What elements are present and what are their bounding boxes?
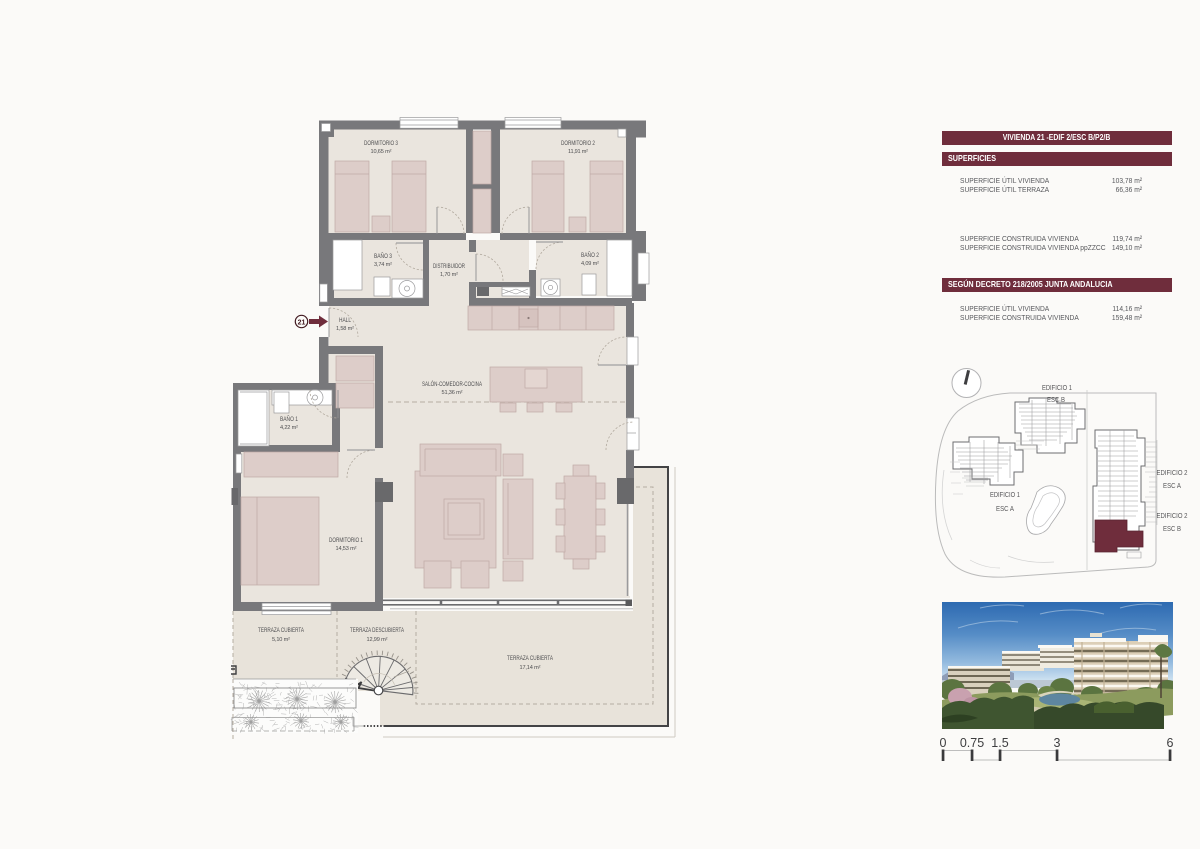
svg-text:4,22 m²: 4,22 m² <box>280 425 298 431</box>
svg-text:TERRAZA DESCUBIERTA: TERRAZA DESCUBIERTA <box>350 628 404 634</box>
svg-text:4,09 m²: 4,09 m² <box>581 261 599 267</box>
svg-text:17,14 m²: 17,14 m² <box>520 665 541 671</box>
svg-text:11,91 m²: 11,91 m² <box>568 149 588 155</box>
svg-text:HALL: HALL <box>339 318 352 324</box>
svg-text:DORMITORIO 2: DORMITORIO 2 <box>561 141 596 147</box>
svg-text:51,36 m²: 51,36 m² <box>442 390 463 396</box>
svg-text:0.75: 0.75 <box>960 736 984 750</box>
svg-text:6: 6 <box>1167 736 1174 750</box>
svg-text:BAÑO 2: BAÑO 2 <box>581 252 600 259</box>
svg-text:3,74 m²: 3,74 m² <box>374 262 392 268</box>
svg-text:DORMITORIO 3: DORMITORIO 3 <box>364 141 399 147</box>
svg-text:DORMITORIO 1: DORMITORIO 1 <box>329 538 364 544</box>
svg-text:EDIFICIO 2: EDIFICIO 2 <box>1157 468 1188 477</box>
svg-text:EDIFICIO 1: EDIFICIO 1 <box>1042 383 1072 392</box>
svg-text:10,65 m²: 10,65 m² <box>371 149 392 155</box>
svg-text:3: 3 <box>1054 736 1061 750</box>
svg-text:BAÑO 3: BAÑO 3 <box>374 253 393 260</box>
svg-text:ESC A: ESC A <box>996 504 1014 513</box>
svg-text:DISTRIBUIDOR: DISTRIBUIDOR <box>433 264 465 270</box>
svg-text:1,70 m²: 1,70 m² <box>440 272 458 278</box>
svg-text:EDIFICIO 2: EDIFICIO 2 <box>1157 511 1188 520</box>
svg-text:5,10 m²: 5,10 m² <box>272 637 290 643</box>
svg-text:ESC B: ESC B <box>1163 524 1181 533</box>
svg-text:12,99 m²: 12,99 m² <box>367 637 388 643</box>
svg-text:TERRAZA CUBIERTA: TERRAZA CUBIERTA <box>507 656 553 662</box>
svg-text:ESC B: ESC B <box>1047 395 1065 404</box>
svg-text:21: 21 <box>298 319 306 326</box>
svg-text:14,53 m²: 14,53 m² <box>336 546 357 552</box>
svg-text:SALÓN-COMEDOR-COCINA: SALÓN-COMEDOR-COCINA <box>422 381 482 388</box>
svg-text:0: 0 <box>940 736 947 750</box>
svg-text:TERRAZA CUBIERTA: TERRAZA CUBIERTA <box>258 628 304 634</box>
svg-text:BAÑO 1: BAÑO 1 <box>280 416 299 423</box>
svg-text:EDIFICIO 1: EDIFICIO 1 <box>990 490 1020 499</box>
svg-text:1.5: 1.5 <box>991 736 1008 750</box>
svg-text:1,58 m²: 1,58 m² <box>336 326 354 332</box>
svg-text:ESC A: ESC A <box>1163 481 1181 490</box>
